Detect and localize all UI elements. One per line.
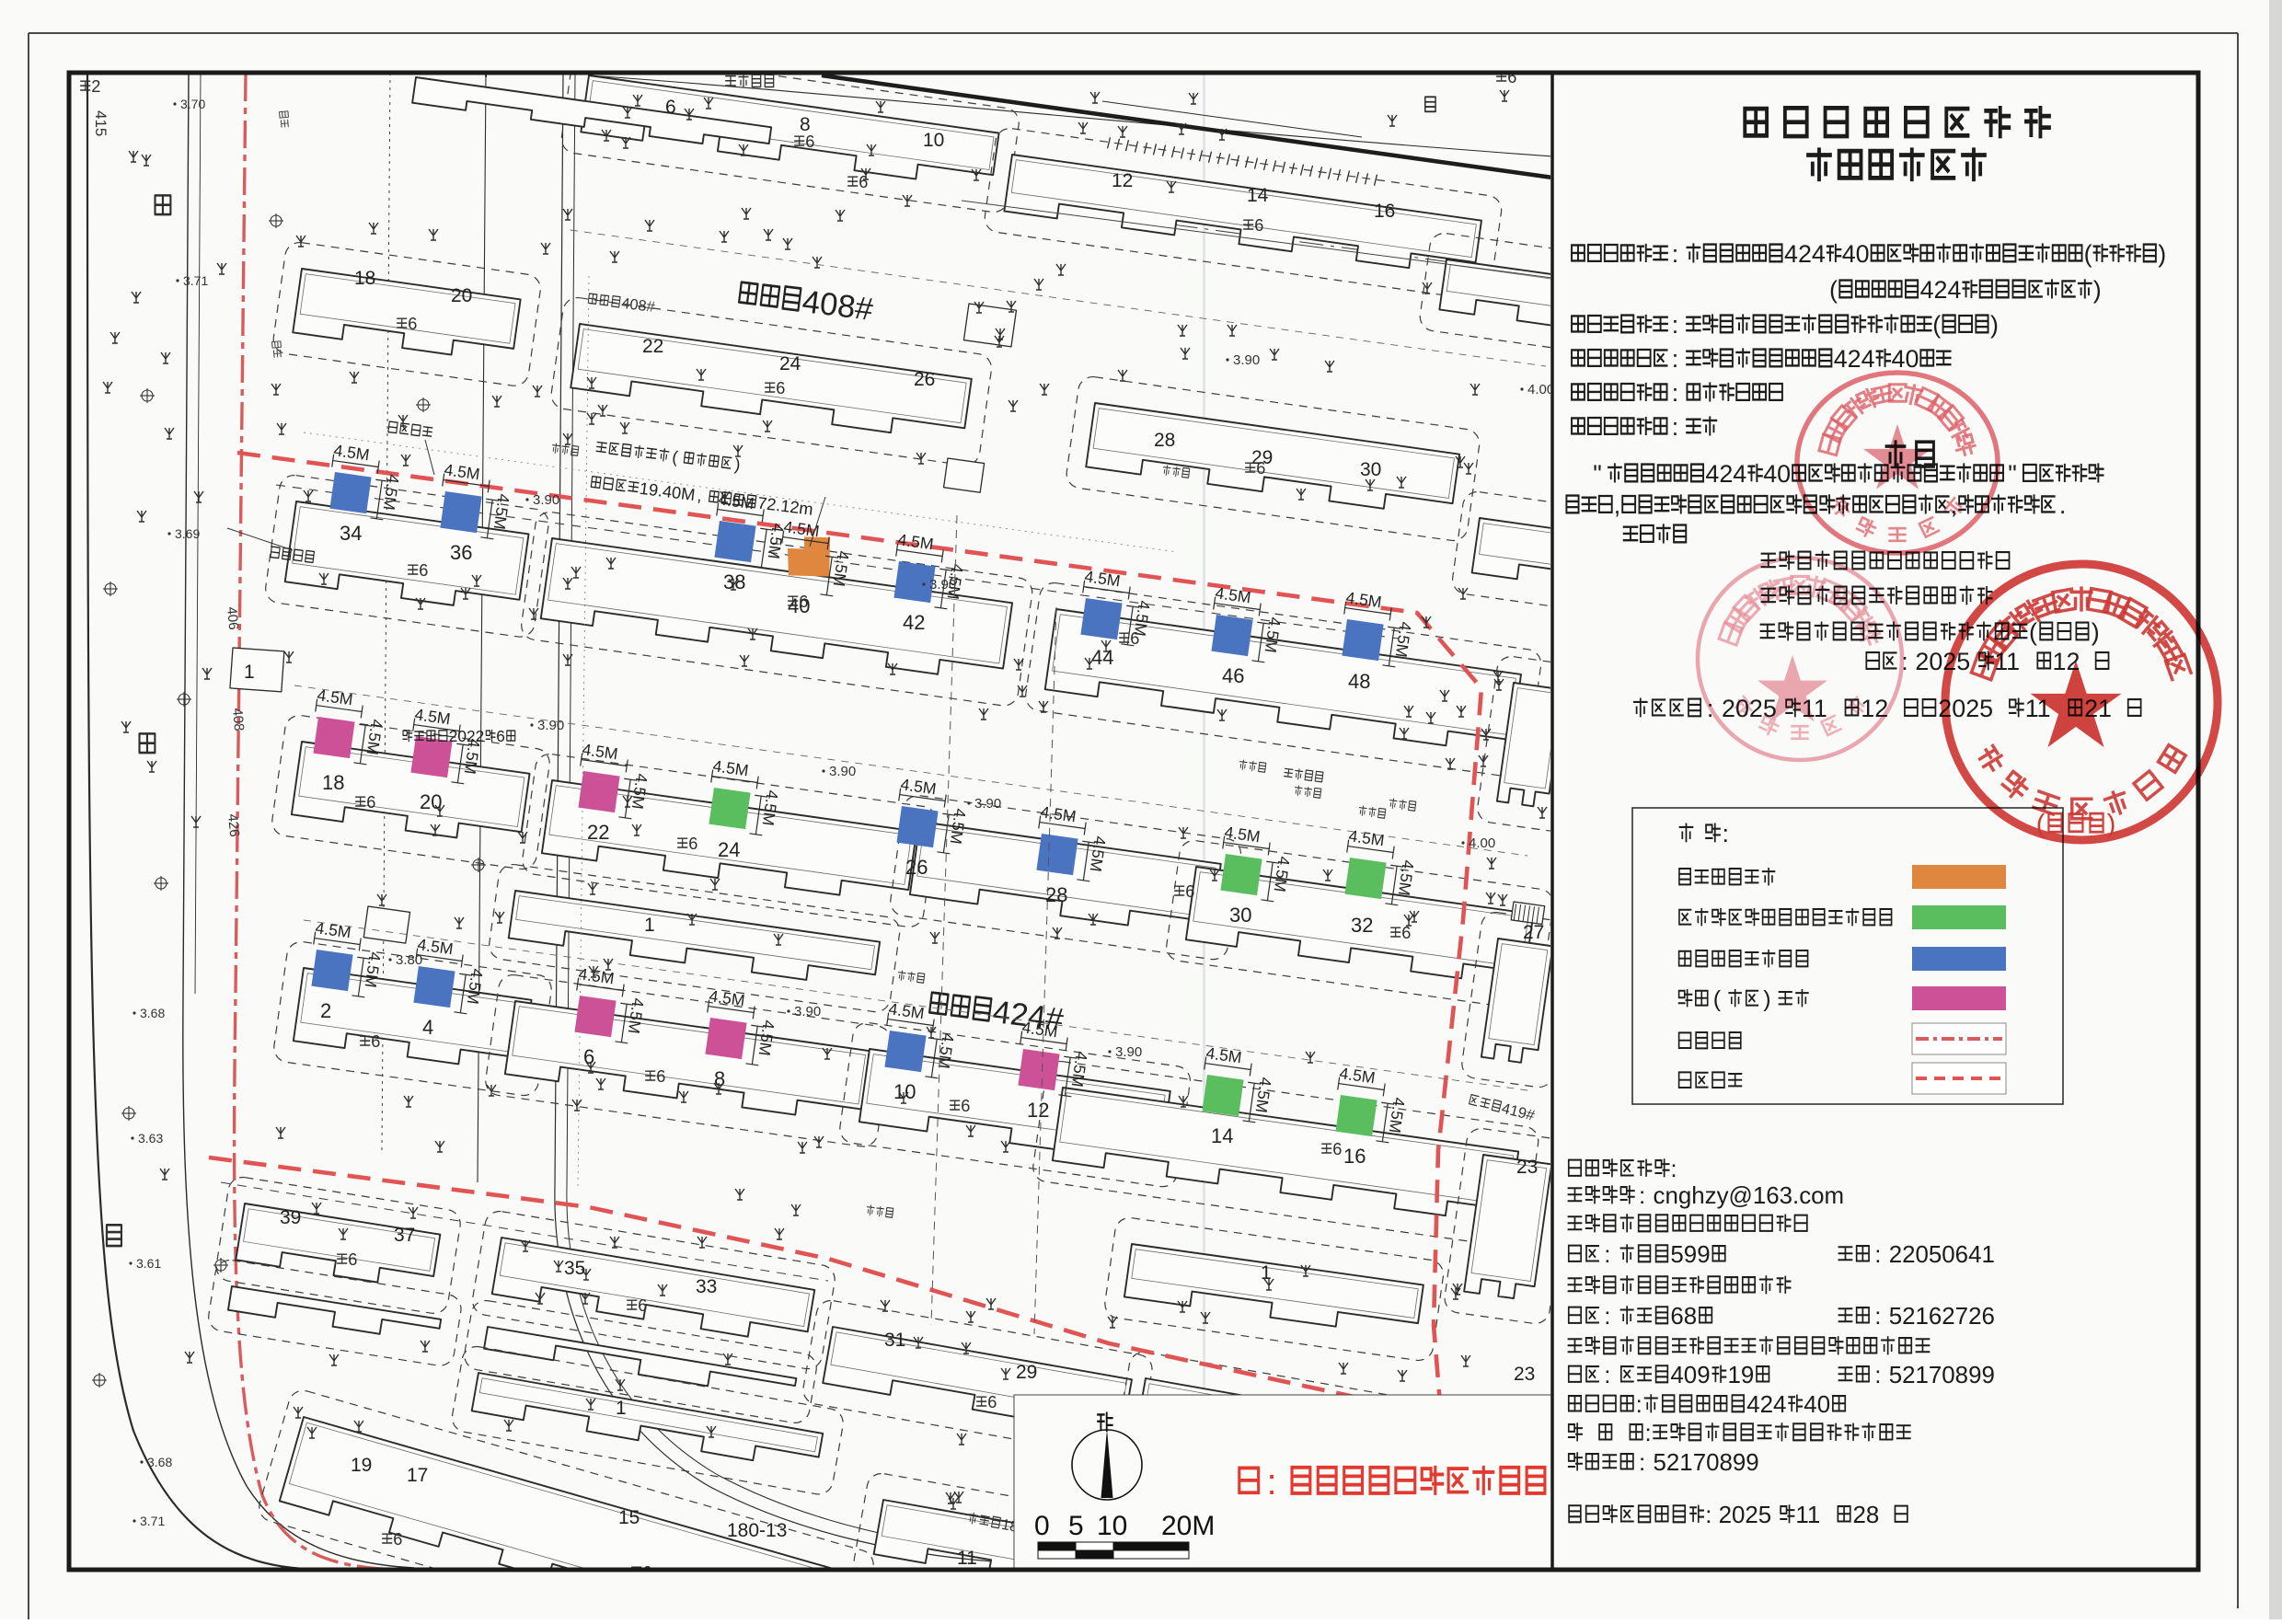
svg-text:10: 10 xyxy=(923,130,944,151)
svg-text:2025: 2025 xyxy=(1915,648,1970,675)
svg-text:11: 11 xyxy=(957,1548,977,1569)
svg-text:415: 415 xyxy=(92,110,109,136)
svg-text:3.90: 3.90 xyxy=(537,718,564,733)
svg-text:39: 39 xyxy=(280,1207,301,1228)
svg-text:424: 424 xyxy=(1746,1392,1786,1418)
svg-text:6: 6 xyxy=(366,793,375,812)
svg-text:(: ( xyxy=(1829,276,1838,304)
svg-text:6: 6 xyxy=(799,593,808,611)
svg-text:17: 17 xyxy=(407,1465,428,1486)
svg-text:599: 599 xyxy=(1670,1242,1710,1268)
svg-text:6: 6 xyxy=(408,315,417,333)
svg-text:22050641: 22050641 xyxy=(1889,1242,1995,1268)
svg-text:36: 36 xyxy=(450,541,472,564)
svg-text:6: 6 xyxy=(1130,629,1139,648)
svg-text:28: 28 xyxy=(1853,1503,1880,1528)
svg-text:30: 30 xyxy=(1229,904,1251,927)
svg-text:31: 31 xyxy=(884,1330,905,1351)
svg-text::: : xyxy=(1672,240,1678,268)
svg-text:): ) xyxy=(2107,810,2116,839)
svg-text:6: 6 xyxy=(1332,1140,1342,1158)
svg-text::: : xyxy=(1604,1304,1610,1330)
svg-text:1: 1 xyxy=(644,915,655,936)
svg-text:cnghzy@163.com: cnghzy@163.com xyxy=(1654,1183,1845,1209)
svg-text::: : xyxy=(1672,413,1678,441)
svg-text::: : xyxy=(1723,820,1729,847)
svg-text:3.90: 3.90 xyxy=(1233,352,1260,368)
svg-text:6: 6 xyxy=(961,1097,970,1115)
svg-text:3.90: 3.90 xyxy=(974,796,1001,812)
svg-text:6: 6 xyxy=(1254,216,1263,235)
svg-text:6: 6 xyxy=(419,561,428,580)
svg-text:26: 26 xyxy=(914,369,935,390)
svg-text:3.90: 3.90 xyxy=(829,764,856,779)
svg-text::: : xyxy=(1639,1183,1645,1209)
svg-text:6: 6 xyxy=(805,132,814,151)
svg-text:12: 12 xyxy=(1112,170,1133,191)
svg-text:10: 10 xyxy=(893,1080,916,1103)
svg-text:3.80: 3.80 xyxy=(396,952,422,968)
svg-text:3.70: 3.70 xyxy=(180,97,205,111)
svg-text:40: 40 xyxy=(1763,460,1791,488)
svg-text::: : xyxy=(1604,1363,1610,1388)
svg-text::: : xyxy=(1874,1304,1881,1330)
svg-text:52170899: 52170899 xyxy=(1889,1363,1995,1388)
svg-text:6: 6 xyxy=(1256,459,1265,478)
svg-text:29: 29 xyxy=(1016,1362,1037,1383)
svg-text:3.90: 3.90 xyxy=(929,577,956,593)
svg-text:426: 426 xyxy=(225,813,242,837)
svg-text:3.90: 3.90 xyxy=(794,1004,821,1019)
svg-text::: : xyxy=(1874,1242,1881,1268)
svg-text::: : xyxy=(1672,311,1678,339)
svg-text:6: 6 xyxy=(665,97,676,118)
svg-text:40: 40 xyxy=(1842,240,1870,268)
svg-text::: : xyxy=(1672,379,1678,407)
svg-text:): ) xyxy=(2158,240,2166,268)
svg-text::: : xyxy=(1267,1461,1277,1503)
svg-text:3.61: 3.61 xyxy=(136,1256,161,1271)
svg-text:22: 22 xyxy=(587,821,609,844)
svg-text:): ) xyxy=(2092,618,2100,646)
svg-text:14: 14 xyxy=(1211,1124,1233,1147)
svg-text::: : xyxy=(1672,345,1678,373)
svg-text:23: 23 xyxy=(1514,1364,1535,1385)
svg-text::: : xyxy=(1874,1363,1881,1388)
svg-text:4.00: 4.00 xyxy=(1527,382,1554,397)
svg-text:68: 68 xyxy=(1670,1304,1697,1330)
svg-text:(: ( xyxy=(1713,986,1722,1012)
svg-text:18: 18 xyxy=(354,268,375,289)
svg-text:24: 24 xyxy=(779,353,801,374)
svg-text:24: 24 xyxy=(718,838,740,861)
svg-text:12: 12 xyxy=(1027,1099,1049,1122)
svg-text:18: 18 xyxy=(322,771,344,794)
svg-text:40: 40 xyxy=(1804,1392,1830,1418)
svg-text:19: 19 xyxy=(1728,1363,1755,1388)
svg-text::: : xyxy=(1639,1450,1645,1476)
svg-text:16: 16 xyxy=(1343,1145,1366,1168)
svg-text::: : xyxy=(1670,1157,1677,1182)
svg-text:4.00: 4.00 xyxy=(1469,835,1495,851)
svg-text:3.63: 3.63 xyxy=(138,1131,163,1146)
svg-text:44: 44 xyxy=(1091,646,1113,669)
svg-text:): ) xyxy=(1763,986,1770,1012)
svg-text:3.69: 3.69 xyxy=(175,526,200,541)
svg-text:3.68: 3.68 xyxy=(147,1455,172,1469)
svg-text:46: 46 xyxy=(1222,664,1244,687)
svg-text:52170899: 52170899 xyxy=(1654,1450,1759,1476)
svg-text:26: 26 xyxy=(905,856,928,879)
svg-text:20M: 20M xyxy=(1161,1511,1215,1541)
svg-text:0: 0 xyxy=(1034,1511,1050,1541)
svg-text:): ) xyxy=(1990,311,1999,339)
svg-text:": " xyxy=(1593,460,1602,488)
svg-text:(: ( xyxy=(2084,240,2092,268)
svg-text:1: 1 xyxy=(616,1398,627,1419)
svg-text:424: 424 xyxy=(1784,240,1826,268)
svg-text:37: 37 xyxy=(394,1225,415,1246)
svg-text:11: 11 xyxy=(1795,1503,1820,1528)
svg-text:30: 30 xyxy=(1360,459,1381,480)
svg-text:180-13: 180-13 xyxy=(727,1520,787,1541)
svg-text:3.71: 3.71 xyxy=(140,1514,165,1528)
svg-text:3.90: 3.90 xyxy=(1115,1044,1142,1060)
svg-text:48: 48 xyxy=(1348,670,1370,693)
svg-text:4: 4 xyxy=(422,1016,433,1039)
svg-text:1: 1 xyxy=(244,662,255,683)
svg-text:(: ( xyxy=(1932,311,1941,339)
svg-text:27: 27 xyxy=(1523,922,1544,943)
svg-text:28: 28 xyxy=(1154,430,1175,451)
svg-text:6: 6 xyxy=(776,379,785,397)
svg-text:6: 6 xyxy=(656,1067,665,1086)
svg-text:42: 42 xyxy=(903,611,925,634)
svg-text::: : xyxy=(1604,1242,1610,1268)
svg-text:15: 15 xyxy=(618,1507,640,1528)
svg-text:35: 35 xyxy=(564,1258,585,1279)
svg-text:40: 40 xyxy=(1892,345,1919,373)
svg-text:5: 5 xyxy=(1068,1511,1084,1541)
svg-text:22: 22 xyxy=(642,336,663,357)
svg-text:23: 23 xyxy=(1516,1157,1538,1178)
svg-text:2: 2 xyxy=(91,77,100,96)
svg-text:3.68: 3.68 xyxy=(140,1006,165,1020)
svg-text:10: 10 xyxy=(1097,1511,1127,1541)
svg-text:409: 409 xyxy=(1670,1363,1710,1388)
svg-text:14: 14 xyxy=(1247,185,1269,206)
svg-text:: 2025: : 2025 xyxy=(1705,1503,1771,1528)
svg-text:6: 6 xyxy=(859,173,868,191)
svg-text:424: 424 xyxy=(1705,460,1746,488)
svg-text:": " xyxy=(2008,460,2017,488)
svg-text:6: 6 xyxy=(638,1296,647,1315)
svg-text:(: ( xyxy=(2036,810,2046,839)
svg-text:408: 408 xyxy=(229,708,247,731)
svg-text:6: 6 xyxy=(688,835,697,853)
svg-text:): ) xyxy=(2093,276,2102,304)
svg-text:3.71: 3.71 xyxy=(183,273,208,288)
svg-text:6: 6 xyxy=(987,1393,997,1411)
svg-text:28: 28 xyxy=(1045,883,1067,906)
svg-text:6: 6 xyxy=(1185,882,1194,901)
svg-text:52162726: 52162726 xyxy=(1889,1304,1995,1330)
svg-text:2022: 2022 xyxy=(449,727,484,745)
svg-text:.: . xyxy=(2059,491,2066,519)
svg-text:424: 424 xyxy=(1920,276,1962,304)
svg-text:,: , xyxy=(1614,491,1620,519)
svg-text:3.90: 3.90 xyxy=(533,492,559,508)
svg-text:34: 34 xyxy=(340,522,362,545)
svg-text:6: 6 xyxy=(1401,924,1411,942)
svg-text::: : xyxy=(1636,1392,1642,1418)
svg-text:424: 424 xyxy=(1834,345,1875,373)
svg-text:6: 6 xyxy=(348,1250,357,1269)
svg-text:6: 6 xyxy=(496,727,505,745)
svg-text::: : xyxy=(1645,1421,1652,1446)
svg-text:16: 16 xyxy=(1374,201,1395,222)
svg-text:19: 19 xyxy=(351,1455,372,1476)
svg-text:32: 32 xyxy=(1351,914,1373,937)
svg-text:20: 20 xyxy=(451,285,472,306)
svg-text:6: 6 xyxy=(371,1032,380,1051)
svg-text:406: 406 xyxy=(224,606,241,630)
svg-text:33: 33 xyxy=(696,1276,717,1297)
svg-text:6: 6 xyxy=(393,1530,402,1549)
svg-text:2: 2 xyxy=(320,999,331,1022)
